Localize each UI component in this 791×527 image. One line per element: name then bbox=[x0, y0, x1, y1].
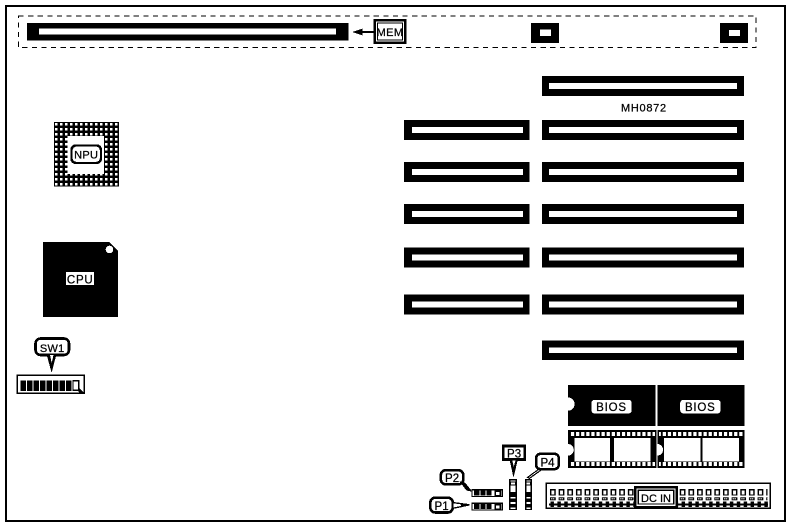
svg-text:P2: P2 bbox=[445, 473, 459, 485]
svg-text:MEM: MEM bbox=[377, 27, 404, 39]
svg-text:CPU: CPU bbox=[67, 275, 94, 287]
svg-text:BIOS: BIOS bbox=[596, 402, 627, 414]
svg-text:P1: P1 bbox=[435, 501, 449, 513]
svg-text:P4: P4 bbox=[540, 458, 555, 470]
svg-text:P3: P3 bbox=[507, 448, 521, 460]
svg-text:MH0872: MH0872 bbox=[621, 103, 667, 115]
svg-text:BIOS: BIOS bbox=[685, 402, 716, 414]
svg-text:DC IN: DC IN bbox=[641, 493, 671, 505]
svg-text:NPU: NPU bbox=[74, 150, 98, 162]
svg-text:SW1: SW1 bbox=[40, 343, 65, 355]
